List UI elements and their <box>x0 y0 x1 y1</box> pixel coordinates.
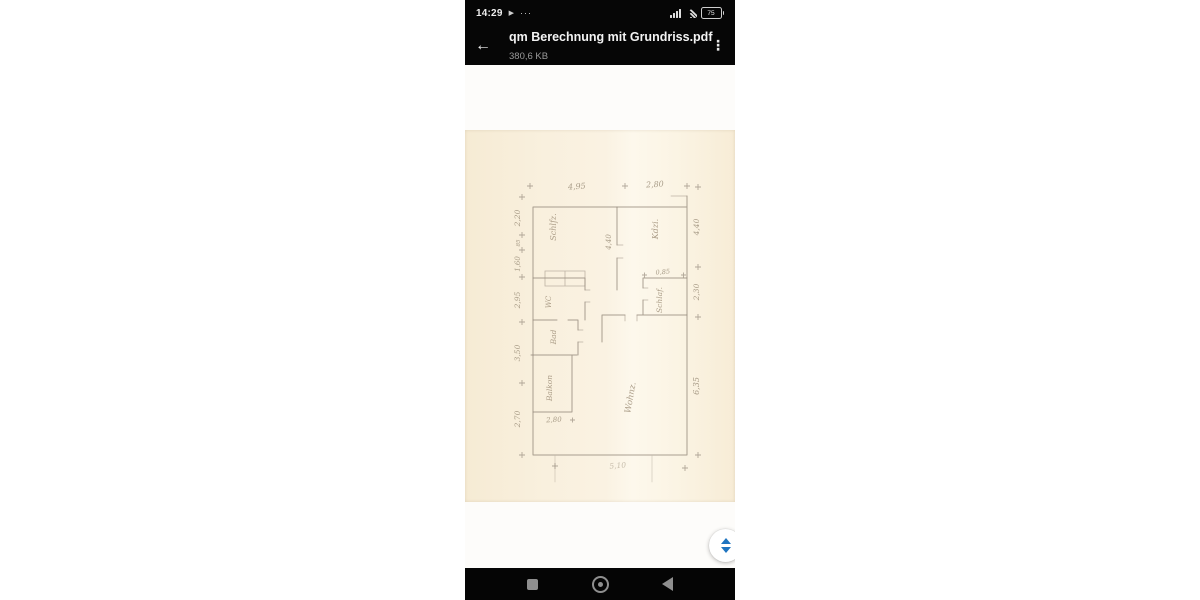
home-button[interactable] <box>592 576 609 593</box>
clock: 14:29 <box>476 8 503 19</box>
back-arrow-icon[interactable]: ← <box>475 37 501 55</box>
dim-inner-b: 0,85 <box>655 267 670 276</box>
extension-lines <box>555 456 652 482</box>
document-title: qm Berechnung mit Grundriss.pdf <box>509 30 713 44</box>
dim-left-a: 2,20 <box>513 209 522 227</box>
room-label-schlaf: Schlaf. <box>655 287 664 313</box>
app-bar: ← qm Berechnung mit Grundriss.pdf 380,6 … <box>465 26 735 65</box>
overflow-menu-icon[interactable]: ⋮ <box>711 37 725 54</box>
phone-screen: 14:29 ▶ ··· 75 ← qm Berechnung mit Grund… <box>465 0 735 600</box>
dim-right-c: 6,35 <box>692 377 701 395</box>
play-notification-icon: ▶ <box>509 10 514 17</box>
dim-bottom: 5,10 <box>609 460 627 470</box>
dimension-ticks <box>519 183 701 471</box>
top-bar: 14:29 ▶ ··· 75 ← qm Berechnung mit Grund… <box>465 0 735 65</box>
scroll-down-icon[interactable] <box>721 547 731 553</box>
nav-back-button[interactable] <box>662 577 673 591</box>
more-notifications-icon: ··· <box>520 9 532 18</box>
battery-icon: 75 <box>701 7 725 19</box>
dim-balkon-width: 2,80 <box>545 416 563 425</box>
dim-left-d: 2,95 <box>513 291 522 309</box>
room-label-wohnzimmer: Wohnz. <box>623 381 638 414</box>
fast-scroll-handle[interactable] <box>709 529 735 562</box>
dim-right-a: 4,40 <box>692 218 701 236</box>
dim-left-e: 3,50 <box>513 344 522 361</box>
door-marks <box>578 245 648 342</box>
dim-top-b: 2,80 <box>645 180 664 190</box>
dim-left-f: 2,70 <box>513 410 522 428</box>
recents-button[interactable] <box>527 579 538 590</box>
pdf-viewer[interactable]: 4,95 2,80 2,20 85 1,60 2,95 3,50 2,70 4,… <box>465 65 735 568</box>
room-label-wc: WC <box>545 295 553 308</box>
dim-top-a: 4,95 <box>567 181 586 191</box>
dim-inner-a: 4,40 <box>605 234 613 251</box>
room-label-balkon: Balkon <box>545 375 554 402</box>
cellular-signal-icon <box>670 9 681 18</box>
document-filesize: 380,6 KB <box>509 51 548 62</box>
scanned-floorplan-page[interactable]: 4,95 2,80 2,20 85 1,60 2,95 3,50 2,70 4,… <box>465 130 735 502</box>
status-right: 75 <box>670 7 725 19</box>
appbar-titles: qm Berechnung mit Grundriss.pdf 380,6 KB <box>501 28 711 64</box>
room-label-kinderzimmer: Kdzi. <box>651 219 660 240</box>
battery-percent: 75 <box>701 7 722 19</box>
dim-left-c: 1,60 <box>514 256 522 272</box>
room-label-bad: Bad <box>549 329 558 345</box>
wifi-icon <box>685 8 697 18</box>
android-nav-bar <box>465 568 735 600</box>
room-label-schlafzimmer: Schlfz. <box>549 213 558 240</box>
status-bar: 14:29 ▶ ··· 75 <box>465 0 735 26</box>
dim-right-b: 2,30 <box>692 283 701 301</box>
scroll-up-icon[interactable] <box>721 538 731 544</box>
status-left: 14:29 ▶ ··· <box>476 8 532 19</box>
floorplan-sketch: 4,95 2,80 2,20 85 1,60 2,95 3,50 2,70 4,… <box>465 130 735 502</box>
dim-left-b: 85 <box>516 239 522 246</box>
screenshot-canvas: 14:29 ▶ ··· 75 ← qm Berechnung mit Grund… <box>0 0 1200 600</box>
